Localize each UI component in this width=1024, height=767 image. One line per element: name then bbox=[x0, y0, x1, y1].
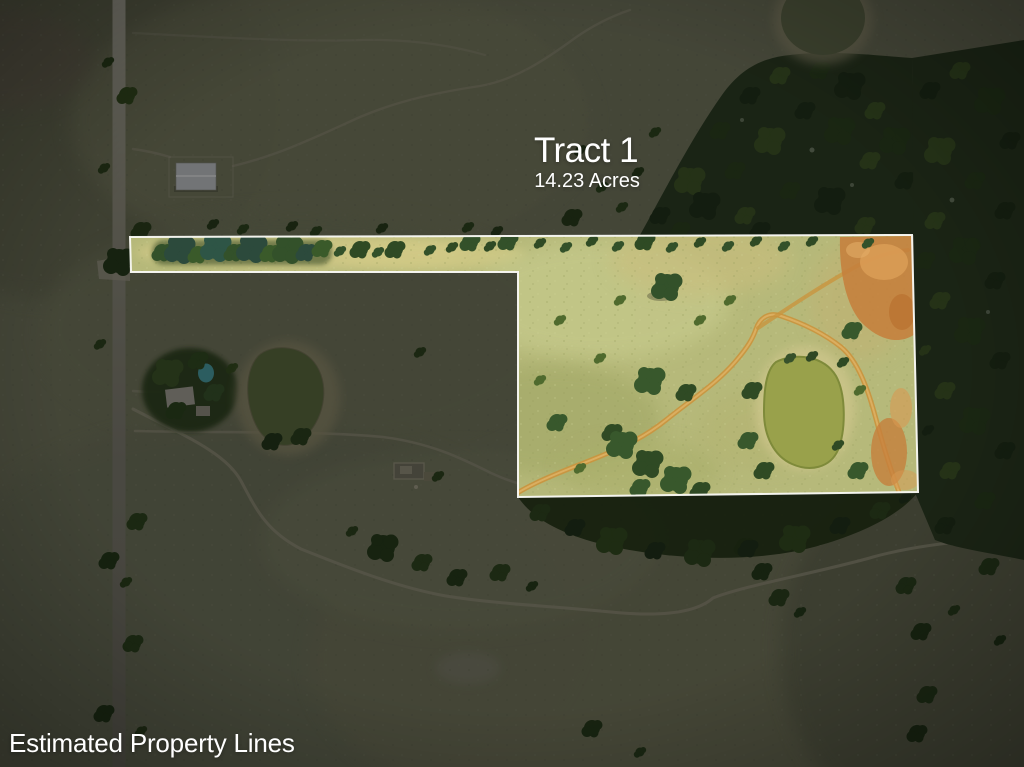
vignette bbox=[0, 0, 1024, 767]
tract-acreage-label: 14.23 Acres bbox=[534, 171, 640, 192]
aerial-listing-photo: Tract 1 14.23 Acres Estimated Property L… bbox=[0, 0, 1024, 767]
aerial-photo-canvas bbox=[0, 0, 1024, 767]
estimated-property-lines-label: Estimated Property Lines bbox=[9, 730, 295, 757]
tract-title-label: Tract 1 bbox=[534, 133, 638, 170]
